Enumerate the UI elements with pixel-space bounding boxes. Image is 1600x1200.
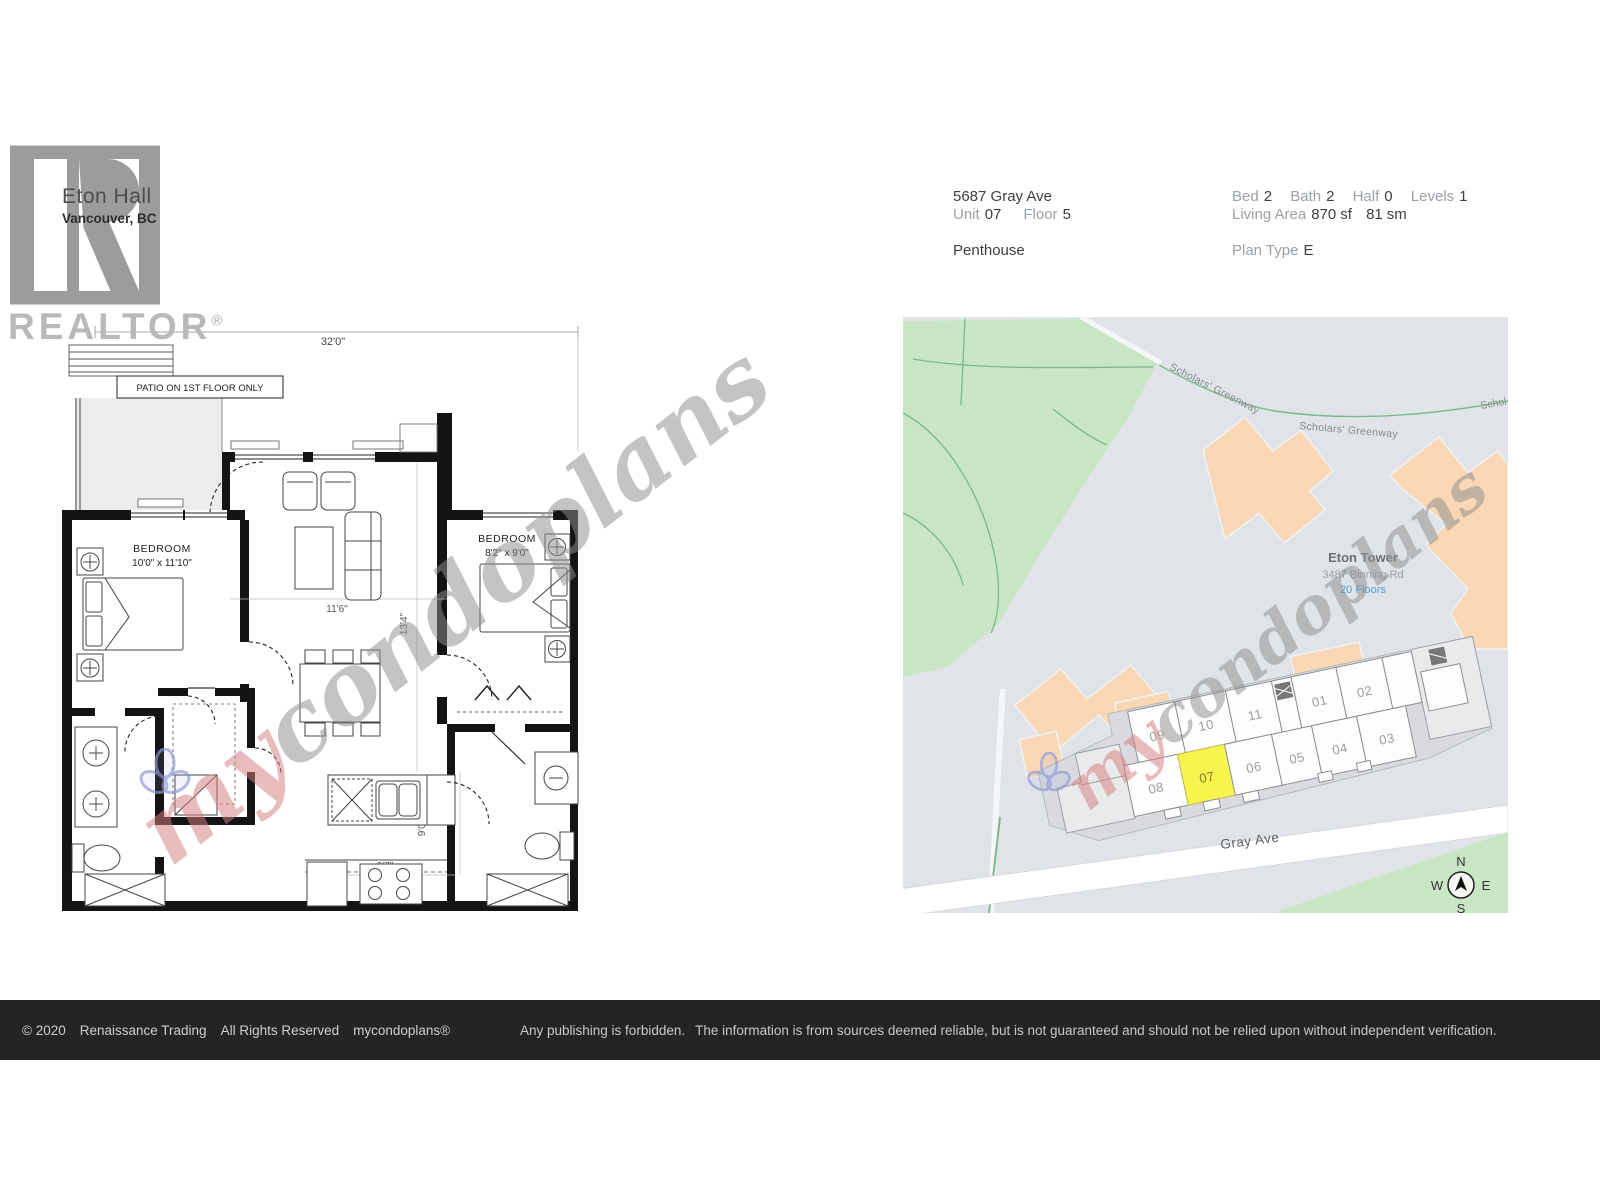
unit-value: 07: [985, 206, 1002, 223]
svg-text:W: W: [1431, 878, 1444, 893]
floor-value: 5: [1063, 206, 1071, 223]
trillium-logo-icon: [138, 748, 192, 802]
patio-note: PATIO ON 1ST FLOOR ONLY: [136, 383, 264, 394]
dim-living: 11'6": [326, 604, 348, 615]
tower-address: 3487 Binning Rd: [1322, 569, 1403, 581]
stairs: [69, 345, 173, 376]
dim-living-v: 13'4": [399, 612, 410, 635]
unit-label: 02: [1355, 683, 1373, 701]
property-info-left: 5687 Gray Ave Unit07Floor5 Penthouse: [953, 188, 1071, 260]
patio-area: [75, 398, 222, 512]
plan-type: E: [1303, 242, 1313, 259]
property-type: Penthouse: [953, 242, 1025, 259]
bedroom2-size: 8'2" x 9'0": [485, 548, 529, 559]
kitchen-counter: [305, 860, 447, 906]
kitchen-island: [328, 775, 455, 825]
bedroom2-label: BEDROOM: [478, 533, 536, 545]
footer-bar: © 2020 Renaissance Trading All Rights Re…: [0, 1000, 1600, 1060]
unit-label: 08: [1147, 779, 1165, 797]
svg-text:N: N: [1456, 854, 1465, 869]
living-furniture: [283, 472, 381, 600]
bedroom1-label: BEDROOM: [133, 543, 191, 555]
footer-company: Renaissance Trading: [80, 1023, 207, 1038]
location-map: 09 10 11 01 02 08 07 06 05 04 03 Scholar…: [903, 317, 1508, 913]
unit-label: 01: [1310, 692, 1328, 710]
svg-text:E: E: [1482, 878, 1491, 893]
tower-floors-link[interactable]: 20 Floors: [1340, 584, 1386, 596]
unit-label: 06: [1245, 758, 1263, 776]
bathroom2: [487, 752, 578, 906]
footer-copyright: © 2020 Renaissance Trading All Rights Re…: [22, 1000, 464, 1060]
dining-set: [300, 650, 380, 736]
tower-name: Eton Tower: [1328, 550, 1398, 565]
unit-label: 10: [1197, 716, 1215, 734]
footer-disclaimer: Any publishing is forbidden. The informa…: [520, 1000, 1507, 1060]
building-name: Eton Hall: [62, 185, 152, 209]
property-info-right: Bed2 Bath2 Half0 Levels1 Living Area870s…: [1232, 188, 1468, 260]
bedroom1-size: 10'0" x 11'10": [132, 558, 192, 569]
realtor-wordmark: REALTOR®: [8, 306, 222, 348]
building-city: Vancouver, BC: [62, 211, 157, 226]
dim-top-label: 32'0": [321, 336, 345, 348]
footer-brand: mycondoplans®: [353, 1023, 450, 1038]
svg-text:S: S: [1457, 901, 1466, 913]
trillium-logo-icon: [1026, 752, 1072, 798]
unit-label-highlighted: 07: [1198, 768, 1216, 786]
balcony: [400, 424, 437, 452]
unit-label: 09: [1148, 727, 1166, 745]
unit-label: 05: [1288, 749, 1306, 767]
unit-label: 04: [1331, 740, 1349, 758]
page: Eton Hall Vancouver, BC REALTOR® 5687 Gr…: [0, 0, 1600, 1200]
unit-label: 11: [1246, 706, 1263, 724]
closet-hangers: [457, 686, 563, 712]
floorplan-drawing: 32'0" PATIO ON 1ST FLOOR ONLY: [55, 312, 585, 917]
unit-label: 03: [1378, 730, 1396, 748]
address: 5687 Gray Ave: [953, 188, 1052, 205]
